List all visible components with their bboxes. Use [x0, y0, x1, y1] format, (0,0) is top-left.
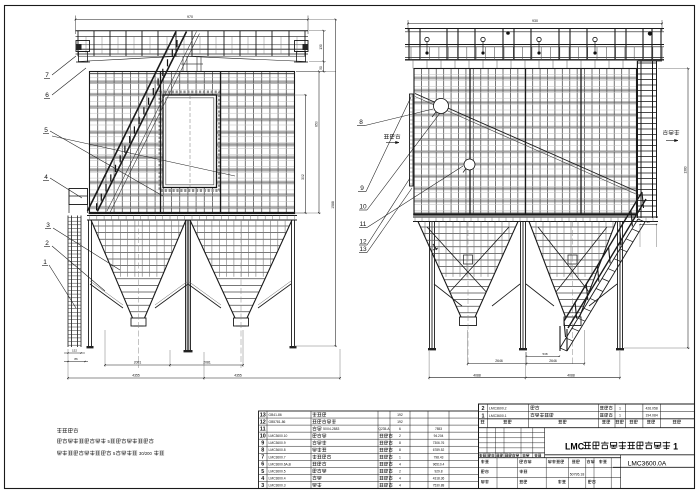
svg-text:7: 7 — [261, 455, 264, 461]
svg-text:4355: 4355 — [132, 374, 140, 378]
svg-text:3: 3 — [261, 483, 264, 489]
svg-text:152: 152 — [72, 349, 77, 353]
svg-text:5: 5 — [44, 127, 48, 134]
svg-text:192: 192 — [397, 420, 403, 424]
svg-text:538: 538 — [542, 352, 547, 356]
svg-text:1: 1 — [619, 406, 621, 410]
svg-text:7853: 7853 — [435, 427, 442, 431]
svg-text:4: 4 — [399, 476, 401, 480]
svg-text:2: 2 — [399, 434, 401, 438]
svg-text:10: 10 — [260, 434, 266, 440]
svg-text:12: 12 — [359, 239, 367, 246]
svg-text:6789.52: 6789.52 — [433, 448, 445, 452]
svg-text:13: 13 — [260, 412, 266, 418]
svg-text:4088: 4088 — [567, 373, 575, 377]
svg-text:4: 4 — [261, 476, 264, 482]
svg-text:LMC3600.3: LMC3600.3 — [269, 483, 286, 487]
svg-text:LMC3600.0A: LMC3600.0A — [628, 460, 667, 467]
svg-text:LMC3600.10: LMC3600.10 — [269, 434, 288, 438]
svg-text:13: 13 — [359, 246, 367, 253]
svg-text:8: 8 — [399, 441, 401, 445]
svg-text:LMC: LMC — [565, 441, 585, 451]
svg-text:5: 5 — [261, 469, 264, 475]
svg-text:650: 650 — [315, 121, 319, 127]
svg-text:2081: 2081 — [203, 361, 211, 365]
svg-text:8: 8 — [261, 448, 264, 454]
svg-text:7: 7 — [45, 72, 49, 79]
svg-text:86: 86 — [74, 357, 78, 361]
svg-text:LMC3600.2: LMC3600.2 — [489, 407, 507, 411]
svg-text:2: 2 — [482, 406, 485, 412]
svg-text:192: 192 — [397, 413, 403, 417]
svg-text:4318.36: 4318.36 — [433, 476, 445, 480]
svg-text:6: 6 — [261, 462, 264, 468]
svg-text:50: 50 — [319, 66, 323, 70]
svg-text:930: 930 — [532, 19, 538, 23]
svg-text:7530.88: 7530.88 — [433, 483, 445, 487]
svg-text:10: 10 — [359, 204, 367, 211]
svg-text:1: 1 — [399, 455, 401, 459]
svg-text:970: 970 — [187, 15, 193, 19]
svg-text:GB41-86: GB41-86 — [269, 413, 282, 417]
svg-text:3: 3 — [46, 222, 50, 229]
svg-text:Q235-A: Q235-A — [379, 427, 391, 431]
svg-text:2081: 2081 — [134, 361, 142, 365]
svg-text:LMC3600.7: LMC3600.7 — [269, 455, 286, 459]
svg-text:LMC3600.4: LMC3600.4 — [269, 476, 286, 480]
svg-text:96: 96 — [646, 220, 650, 224]
svg-text:4: 4 — [44, 174, 48, 181]
svg-text:2646: 2646 — [495, 359, 503, 363]
svg-text:8: 8 — [399, 448, 401, 452]
svg-text:9: 9 — [261, 441, 264, 447]
svg-text:30/200: 30/200 — [139, 451, 152, 456]
svg-text:1: 1 — [482, 413, 485, 419]
svg-text:LMC3600.5: LMC3600.5 — [269, 469, 286, 473]
svg-text:194.084: 194.084 — [645, 414, 657, 418]
svg-text:4: 4 — [399, 483, 401, 487]
svg-text:50X4-2883: 50X4-2883 — [323, 427, 339, 431]
svg-text:94.204: 94.204 — [434, 434, 444, 438]
svg-text:4088: 4088 — [473, 373, 481, 377]
svg-text:LMC3600.6A,B: LMC3600.6A,B — [269, 462, 292, 466]
svg-text:4355: 4355 — [234, 374, 242, 378]
svg-text:4: 4 — [399, 462, 401, 466]
svg-text:130: 130 — [319, 44, 323, 50]
svg-text:50795.18: 50795.18 — [570, 472, 585, 476]
svg-text:426.058: 426.058 — [645, 406, 657, 410]
svg-text:GB5781-86: GB5781-86 — [269, 420, 286, 424]
svg-text:11: 11 — [260, 427, 266, 433]
svg-text:12: 12 — [260, 419, 266, 425]
svg-text:929.8: 929.8 — [435, 469, 443, 473]
svg-text:11: 11 — [360, 221, 367, 228]
svg-text:LMC3600.9: LMC3600.9 — [269, 441, 286, 445]
svg-text:1380: 1380 — [684, 166, 688, 173]
svg-text:798.43: 798.43 — [434, 455, 444, 459]
svg-text:LMC3600.1: LMC3600.1 — [489, 414, 507, 418]
svg-text:1588: 1588 — [331, 201, 335, 209]
svg-text:6: 6 — [399, 427, 401, 431]
svg-text:2646: 2646 — [549, 359, 557, 363]
svg-text:9: 9 — [360, 185, 364, 192]
svg-text:7306.76: 7306.76 — [433, 441, 445, 445]
svg-text:LMC3600.8: LMC3600.8 — [269, 448, 286, 452]
svg-text:2: 2 — [399, 469, 401, 473]
svg-text:1: 1 — [619, 414, 621, 418]
svg-text:8: 8 — [359, 119, 363, 126]
svg-text:302: 302 — [301, 174, 305, 180]
svg-text:1: 1 — [43, 259, 47, 266]
svg-text:6: 6 — [45, 92, 49, 99]
svg-text:2: 2 — [45, 240, 49, 247]
svg-text:1: 1 — [673, 441, 678, 451]
svg-text:96510.4: 96510.4 — [433, 462, 445, 466]
